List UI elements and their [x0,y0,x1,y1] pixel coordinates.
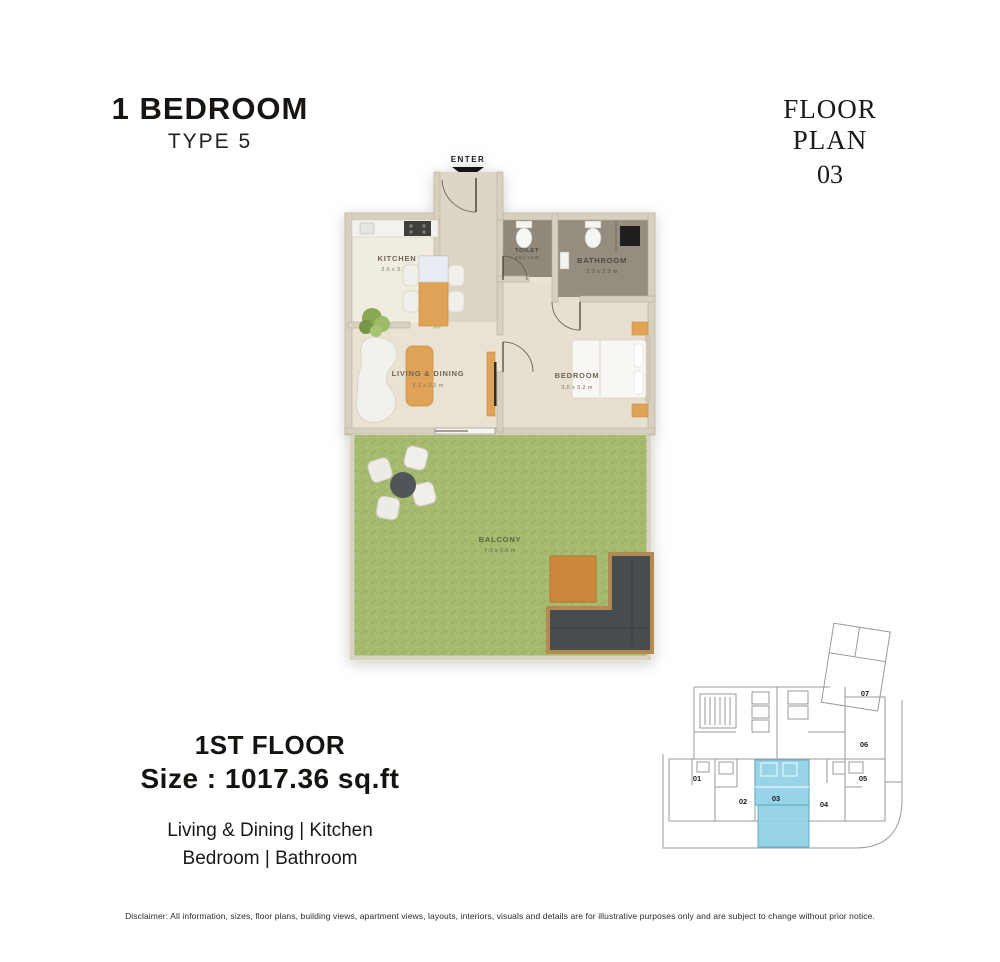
toilet-fixture [516,228,532,248]
unit-details-block: 1ST FLOOR Size : 1017.36 sq.ft Living & … [110,730,430,872]
nightstand-1 [632,322,648,335]
stove [404,221,431,236]
kitchen-sink [360,223,374,234]
disclaimer-text: Disclaimer: All information, sizes, floo… [0,911,1000,921]
bathroom-label: BATHROOM [577,256,627,265]
balcony-dims: 7.0 x 5.6 m [484,548,516,554]
bathroom-sink [560,252,569,269]
toilet-dims: 1.6 x 1.2 m [515,255,539,261]
keyplan-unit-01: 01 [693,774,701,783]
living-dims: 3.3 x 3.1 m [412,383,444,389]
rooms-line-2: Bedroom | Bathroom [110,845,430,873]
floor-plan-image: ENTER BALCONY 7.0 x 5.6 m [330,140,670,670]
living-label: LIVING & DINING [392,369,465,378]
bedroom-label: BEDROOM [555,371,600,380]
toilet-label: TOILET [515,248,539,254]
shower [620,226,640,246]
kitchen-label: KITCHEN [378,254,417,263]
keyplan-highlighted-unit [755,760,809,847]
unit-type-subtitle: TYPE 5 [105,130,315,154]
balcony-label: BALCONY [479,535,522,544]
round-table [390,472,416,498]
keyplan-unit-05: 05 [859,774,867,783]
keyplan-unit-02: 02 [739,797,747,806]
keyplan-unit-07: 07 [861,689,869,698]
floor-plan-label: FLOOR PLAN [750,94,910,156]
key-plan: 01 02 03 04 05 06 07 [652,612,952,870]
keyplan-unit-04: 04 [820,800,829,809]
floor-level: 1ST FLOOR [110,730,430,761]
tv-console [487,352,495,416]
balcony-area: BALCONY 7.0 x 5.6 m [349,428,654,661]
toilet-fixture-2 [585,228,601,248]
keyplan-unit07-block [821,623,890,711]
sliding-door [435,428,495,434]
unit-type-title: 1 BEDROOM [105,92,315,126]
enter-label: ENTER [451,155,486,164]
floor-plan-ref-block: FLOOR PLAN 03 [750,94,910,190]
rooms-line-1: Living & Dining | Kitchen [110,817,430,845]
balcony-side-table [550,556,596,602]
unit-type-title-block: 1 BEDROOM TYPE 5 [105,92,315,154]
bathroom-dims: 2.0 x 2.3 m [586,269,618,275]
tv [494,362,497,406]
unit-size: Size : 1017.36 sq.ft [110,763,430,795]
keyplan-unit06-block [845,697,885,759]
bedroom-dims: 3.0 x 3.2 m [561,385,593,391]
floor-plan-number: 03 [750,160,910,190]
nightstand-2 [632,404,648,417]
keyplan-unit-06: 06 [860,740,868,749]
keyplan-unit-03: 03 [772,794,780,803]
